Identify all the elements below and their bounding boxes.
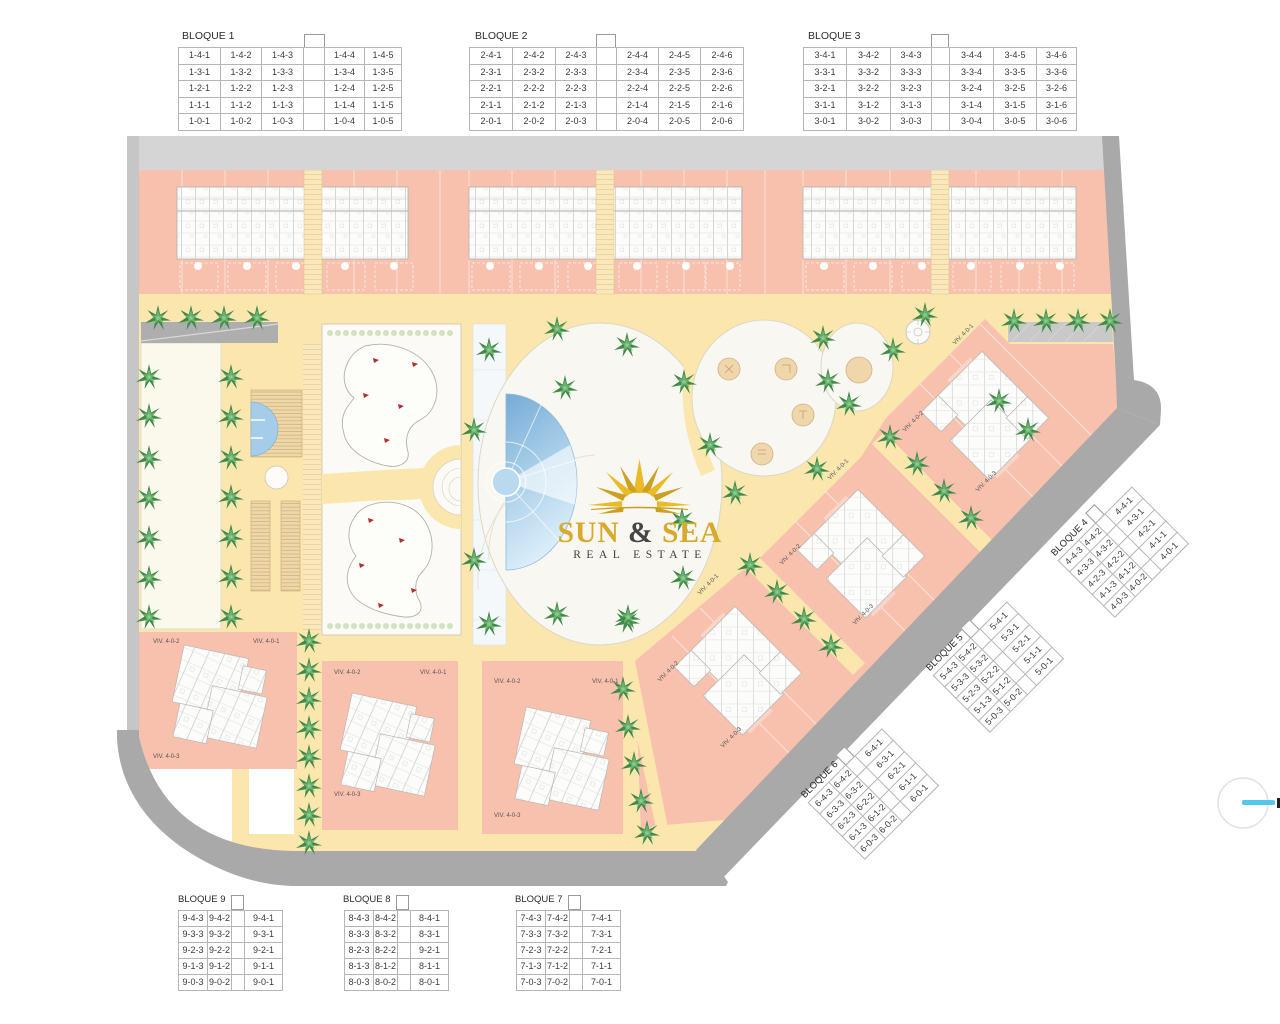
svg-text:VIV. 4-0-3: VIV. 4-0-3 xyxy=(153,754,180,760)
svg-text:VIV. 4-0-1: VIV. 4-0-1 xyxy=(420,670,447,676)
svg-text:VIV. 4-0-2: VIV. 4-0-2 xyxy=(153,639,180,645)
svg-text:VIV. 4-0-3: VIV. 4-0-3 xyxy=(494,813,521,819)
svg-text:VIV. 4-0-2: VIV. 4-0-2 xyxy=(494,679,521,685)
svg-text:VIV. 4-0-2: VIV. 4-0-2 xyxy=(334,670,361,676)
svg-text:VIV. 4-0-1: VIV. 4-0-1 xyxy=(253,639,280,645)
svg-text:VIV. 4-0-3: VIV. 4-0-3 xyxy=(334,792,361,798)
svg-text:VIV. 4-0-1: VIV. 4-0-1 xyxy=(592,679,619,685)
